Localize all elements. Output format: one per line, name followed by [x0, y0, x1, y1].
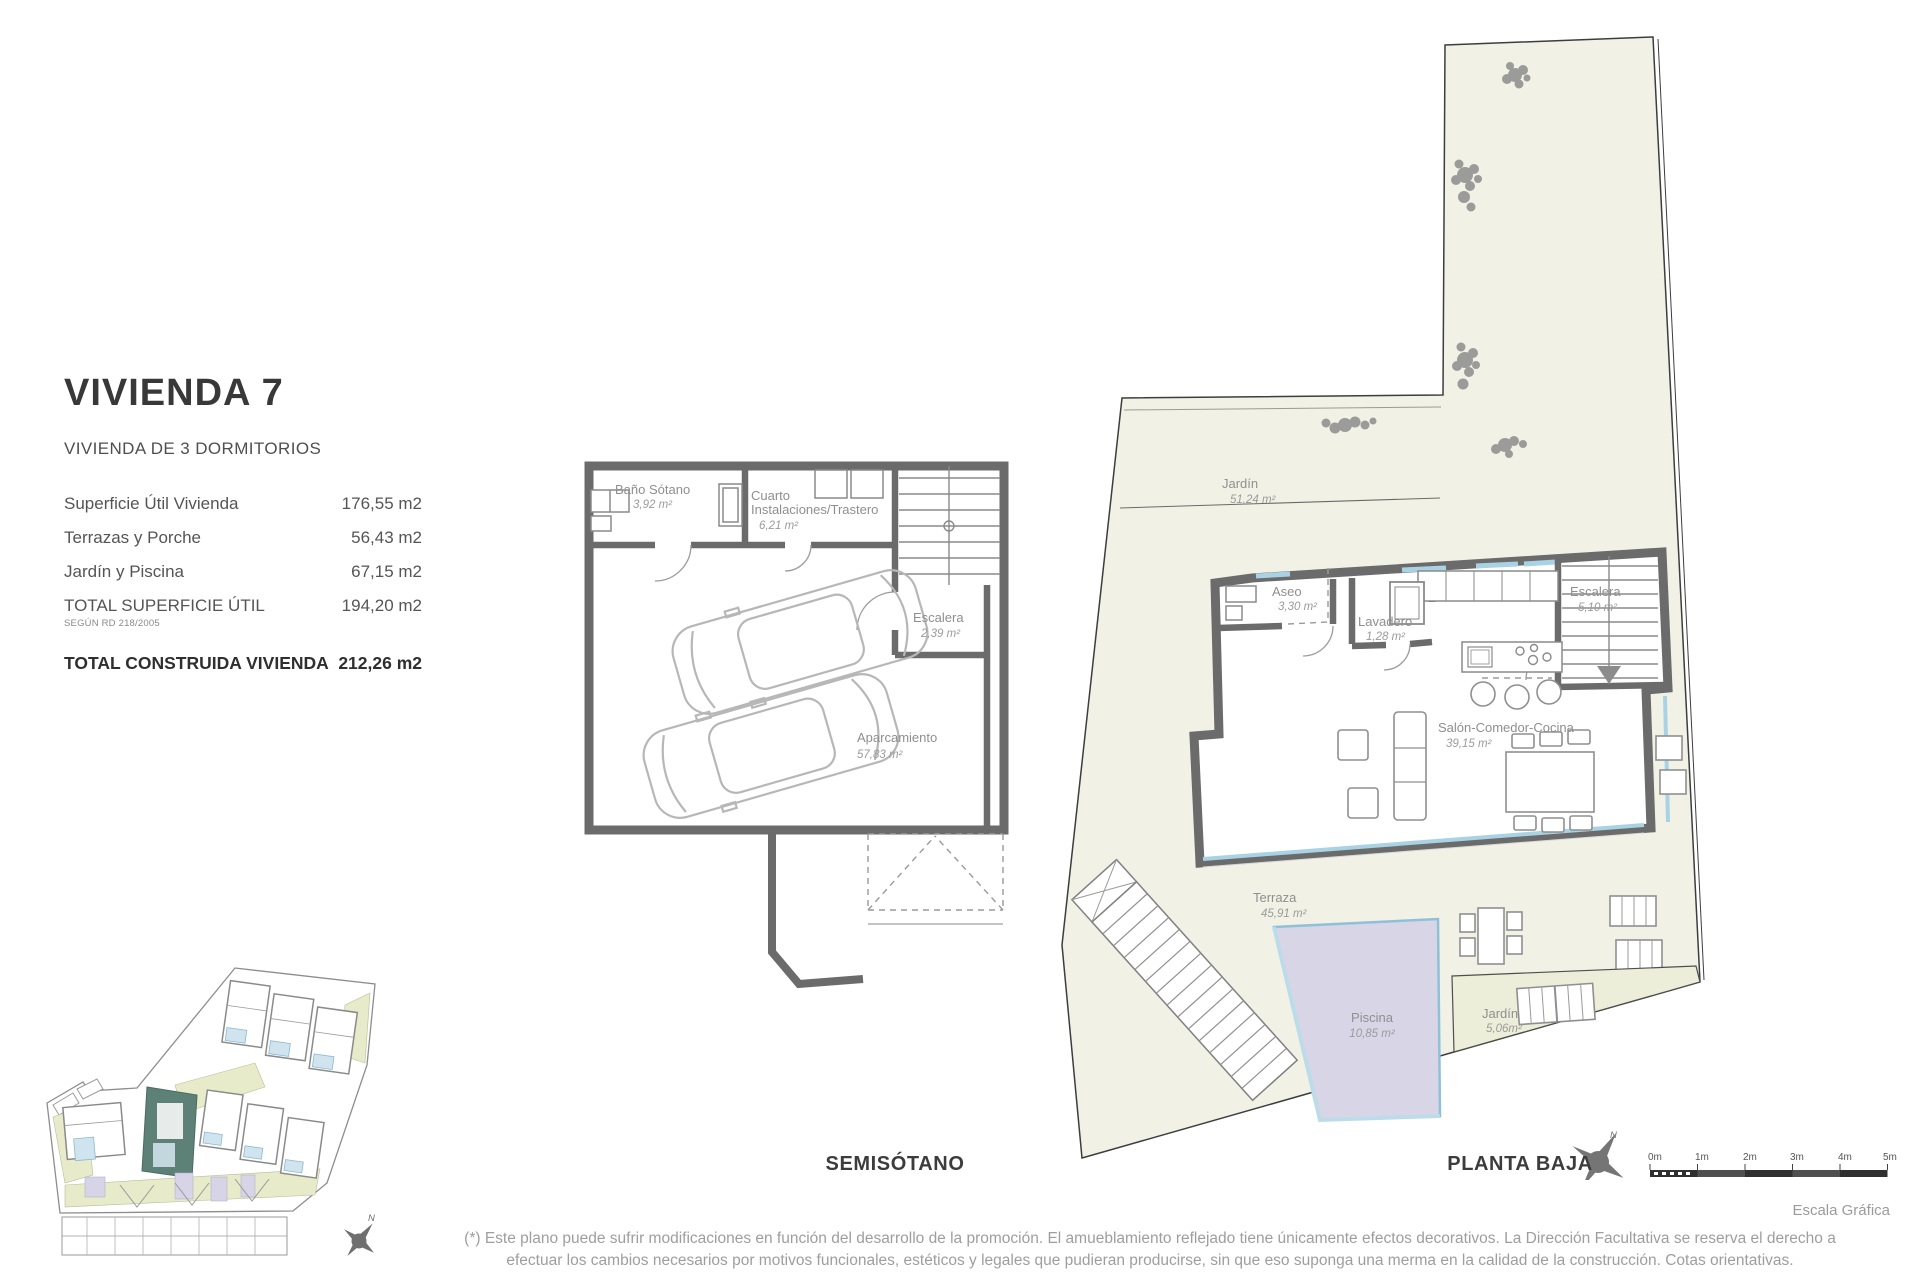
double-lounger: [1517, 983, 1595, 1024]
scale-tick: 3m: [1790, 1152, 1804, 1163]
ground-floor-plan: N Jardín 51,24 m² Aseo 3,30 m² Lavadero …: [1050, 30, 1730, 1180]
room-label-piscina: Piscina: [1351, 1010, 1394, 1025]
row-value: 56,43 m2: [351, 528, 422, 548]
room-area-bano: 3,92 m²: [633, 499, 673, 511]
north-compass-icon: [332, 1212, 387, 1268]
scale-tick: 1m: [1695, 1152, 1709, 1163]
disclaimer: (*) Este plano puede sufrir modificacion…: [420, 1228, 1880, 1272]
room-area-piscina: 10,85 m²: [1349, 1028, 1396, 1040]
room-label-terraza: Terraza: [1253, 890, 1297, 905]
room-label-aseo: Aseo: [1272, 584, 1302, 599]
room-label-cuarto2: Instalaciones/Trastero: [751, 502, 878, 517]
row-label: Terrazas y Porche: [64, 528, 201, 548]
room-area-aseo: 3,30 m²: [1278, 601, 1318, 613]
disclaimer-line2: efectuar los cambios necesarios por moti…: [420, 1250, 1880, 1272]
kitchen-counter: [1418, 571, 1558, 601]
site-plan-map: N: [25, 945, 395, 1280]
page-title: VIVIENDA 7: [64, 372, 422, 415]
disclaimer-line1: (*) Este plano puede sufrir modificacion…: [420, 1228, 1880, 1250]
ground-caption: PLANTA BAJA: [1415, 1153, 1625, 1176]
brochure-page: VIVIENDA 7 VIVIENDA DE 3 DORMITORIOS Sup…: [0, 0, 1920, 1280]
room-area-escalera: 5,10 m²: [1578, 602, 1618, 614]
ramp-area: [868, 834, 1003, 910]
scale-ticks: [1650, 1164, 1888, 1170]
room-label-salon: Salón-Comedor-Cocina: [1438, 720, 1575, 735]
room-area-jardin-norte: 51,24 m²: [1230, 494, 1277, 506]
room-label-aparcamiento: Aparcamiento: [857, 730, 937, 745]
table-row-total: TOTAL CONSTRUIDA VIVIENDA 212,26 m2: [64, 646, 422, 681]
basement-caption: SEMISÓTANO: [790, 1153, 1000, 1176]
room-label-escalera: Escalera: [1570, 584, 1621, 599]
row-value: 212,26 m2: [338, 653, 422, 674]
room-area-escalera: 2,39 m²: [920, 628, 961, 640]
room-label-escalera: Escalera: [913, 610, 964, 625]
room-label-lavadero: Lavadero: [1358, 614, 1412, 629]
row-label: Superficie Útil Vivienda: [64, 494, 239, 514]
room-label-bano: Baño Sótano: [615, 482, 690, 497]
room-area-aparcamiento: 57,83 m²: [857, 749, 904, 761]
scale-tick: 4m: [1838, 1152, 1852, 1163]
surface-table: Superficie Útil Vivienda 176,55 m2 Terra…: [64, 487, 422, 681]
scale-bar: 0m 1m 2m 3m 4m 5m: [1640, 1148, 1900, 1208]
row-value: 176,55 m2: [342, 494, 422, 514]
scale-tick: 0m: [1648, 1152, 1662, 1163]
row-value: 194,20 m2: [342, 596, 422, 616]
north-label: N: [1610, 1130, 1617, 1141]
room-label-jardin-sur: Jardín: [1482, 1006, 1518, 1021]
site-unit-left: [63, 1103, 125, 1162]
scale-caption: Escala Gráfica: [1740, 1202, 1890, 1219]
scale-tick: 2m: [1743, 1152, 1757, 1163]
room-label-jardin-norte: Jardín: [1222, 476, 1258, 491]
row-label: TOTAL CONSTRUIDA VIVIENDA: [64, 653, 329, 674]
room-area-terraza: 45,91 m²: [1261, 908, 1308, 920]
sofa: [1394, 712, 1426, 820]
row-value: 67,15 m2: [351, 562, 422, 582]
lower-wall: [772, 830, 863, 984]
room-label-cuarto: Cuarto: [751, 488, 790, 503]
room-area-lavadero: 1,28 m²: [1366, 631, 1406, 643]
scale-segments: [1650, 1170, 1888, 1177]
site-highlighted-unit: [142, 1087, 197, 1178]
room-area-salon: 39,15 m²: [1446, 738, 1493, 750]
table-row: Superficie Útil Vivienda 176,55 m2: [64, 487, 422, 521]
basement-floor-plan: Baño Sótano 3,92 m² Cuarto Instalaciones…: [575, 450, 1025, 1020]
unit-subtitle: VIVIENDA DE 3 DORMITORIOS: [64, 439, 422, 459]
row-label: TOTAL SUPERFICIE ÚTIL SEGÚN RD 218/2005: [64, 596, 265, 629]
room-area-cuarto: 6,21 m²: [759, 520, 799, 532]
row-label: Jardín y Piscina: [64, 562, 184, 582]
info-panel: VIVIENDA 7 VIVIENDA DE 3 DORMITORIOS Sup…: [64, 372, 422, 681]
site-street-strip: [62, 1217, 287, 1255]
table-row: TOTAL SUPERFICIE ÚTIL SEGÚN RD 218/2005 …: [64, 589, 422, 636]
row-note: SEGÚN RD 218/2005: [64, 618, 265, 629]
scale-tick: 5m: [1883, 1152, 1897, 1163]
room-area-jardin-sur: 5,06m²: [1486, 1023, 1523, 1035]
water-heater: [719, 484, 742, 526]
table-row: Jardín y Piscina 67,15 m2: [64, 555, 422, 589]
table-row: Terrazas y Porche 56,43 m2: [64, 521, 422, 555]
north-label: N: [368, 1213, 375, 1224]
